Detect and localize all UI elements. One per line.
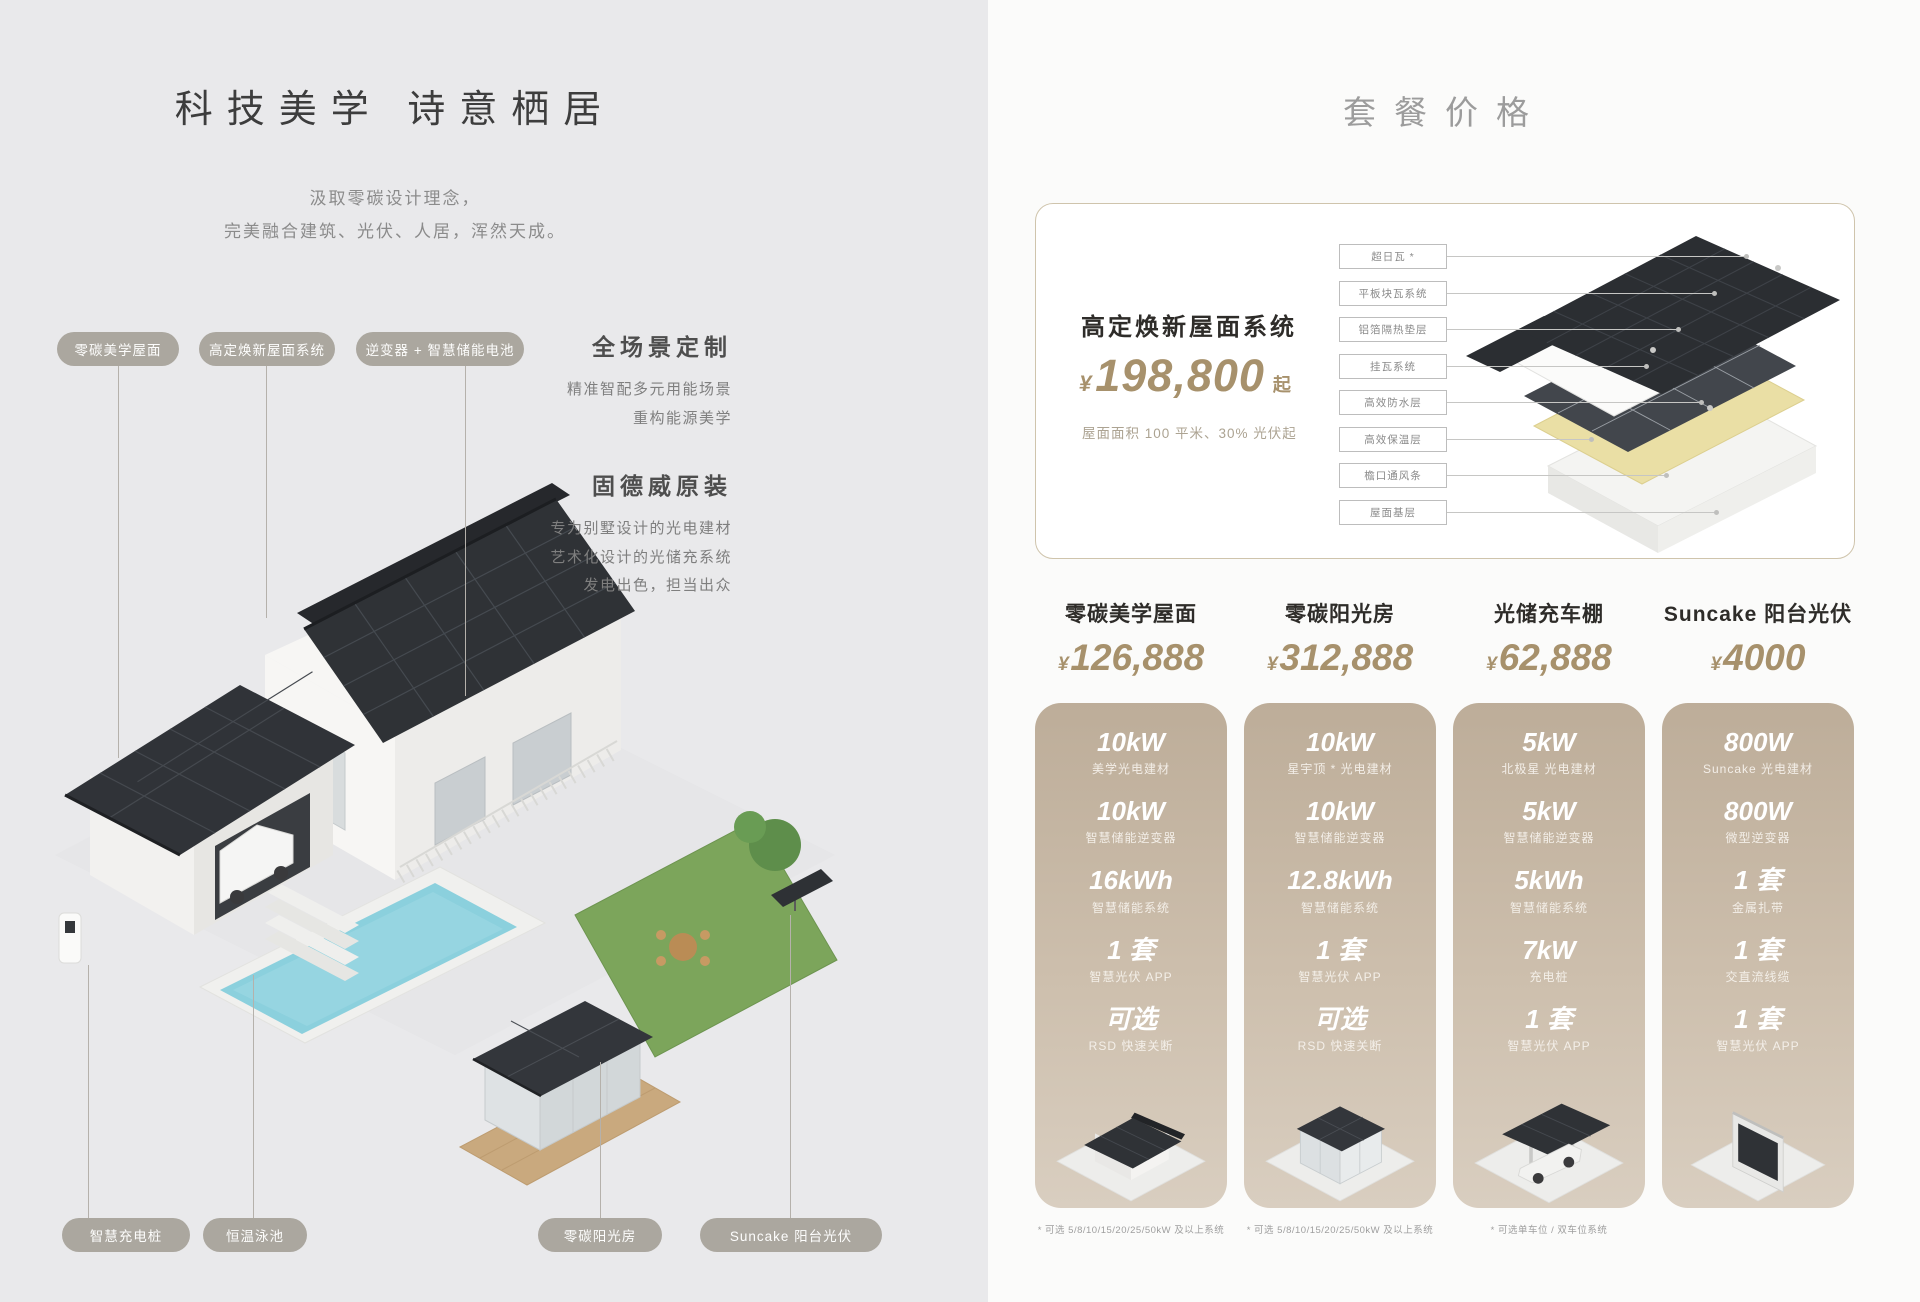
- layer-label: 屋面基层: [1339, 500, 1447, 525]
- roof-system-name: 高定焕新屋面系统: [1081, 307, 1297, 342]
- label-zero-carbon-roof: 零碳美学屋面: [57, 332, 179, 366]
- subtitle-line-2: 完美融合建筑、光伏、人居，浑然天成。: [0, 215, 790, 248]
- spec-label: 交直流线缆: [1725, 968, 1790, 985]
- price-suffix: 起: [1273, 371, 1291, 397]
- spec-value: 1 套: [1298, 935, 1381, 966]
- subtitle-line-1: 汲取零碳设计理念，: [0, 182, 790, 215]
- package-column-carport: 光储充车棚 ¥ 62,888 5kW北极星 光电建材 5kW智慧储能逆变器 5k…: [1453, 598, 1645, 1234]
- leader-line: [790, 915, 791, 1218]
- currency-symbol: ¥: [1486, 654, 1497, 676]
- spec-value: 800W: [1703, 727, 1813, 758]
- spec-label: 智慧光伏 APP: [1089, 968, 1172, 985]
- spec-label: 智慧储能逆变器: [1085, 829, 1176, 846]
- leader-line: [600, 1062, 601, 1218]
- currency-symbol: ¥: [1711, 654, 1722, 676]
- spec-label: 美学光电建材: [1092, 760, 1170, 777]
- spec-label: RSD 快速关断: [1298, 1037, 1383, 1054]
- spec-value: 1 套: [1732, 865, 1784, 896]
- spec-value: 1 套: [1089, 935, 1172, 966]
- feature-heading-goodwe: 固德威原装: [470, 467, 732, 501]
- package-name: Suncake 阳台光伏: [1664, 598, 1852, 628]
- package-price: ¥ 62,888: [1486, 637, 1612, 679]
- spec-label: 智慧光伏 APP: [1507, 1037, 1590, 1054]
- spec-value: 10kW: [1085, 796, 1176, 827]
- roof-layer-row: 铝箔隔热垫层: [1339, 317, 1679, 342]
- package-column-suncake: Suncake 阳台光伏 ¥ 4000 800WSuncake 光电建材 800…: [1662, 598, 1854, 1234]
- spec-label: 金属扎带: [1732, 899, 1784, 916]
- roof-house-illustration: [1039, 1073, 1223, 1208]
- spec-value: 1 套: [1725, 935, 1790, 966]
- feature-heading-custom: 全场景定制: [470, 328, 732, 362]
- roof-layer-row: 平板块瓦系统: [1339, 281, 1715, 306]
- spec-value: 12.8kWh: [1287, 865, 1393, 896]
- spec-label: 微型逆变器: [1724, 829, 1792, 846]
- price-amount: 312,888: [1279, 637, 1413, 679]
- currency-symbol: ¥: [1058, 654, 1069, 676]
- label-heated-pool: 恒温泳池: [203, 1218, 307, 1252]
- layer-label: 高效防水层: [1339, 390, 1447, 415]
- layer-label: 平板块瓦系统: [1339, 281, 1447, 306]
- spec-label: 智慧储能系统: [1089, 899, 1173, 916]
- package-price: ¥ 126,888: [1058, 637, 1204, 679]
- package-footnote: * 可选单车位 / 双车位系统: [1491, 1222, 1608, 1234]
- layer-label: 挂瓦系统: [1339, 354, 1447, 379]
- package-card: 5kW北极星 光电建材 5kW智慧储能逆变器 5kWh智慧储能系统 7kW充电桩…: [1453, 703, 1645, 1208]
- currency-symbol: ¥: [1079, 371, 1091, 397]
- feature-line: 精准智配多元用能场景: [470, 376, 732, 405]
- roof-layer-row: 屋面基层: [1339, 500, 1717, 525]
- package-footnote: * 可选 5/8/10/15/20/25/50kW 及以上系统: [1038, 1222, 1225, 1234]
- spec-value: 10kW: [1287, 727, 1392, 758]
- spec-label: RSD 快速关断: [1089, 1037, 1174, 1054]
- spec-value: 可选: [1298, 1004, 1383, 1035]
- brochure-page: 科技美学 诗意栖居 汲取零碳设计理念， 完美融合建筑、光伏、人居，浑然天成。: [0, 0, 1920, 1302]
- leader-line: [266, 366, 267, 618]
- charging-pile-illustration: [59, 913, 81, 963]
- layer-label: 铝箔隔热垫层: [1339, 317, 1447, 342]
- package-name: 零碳阳光房: [1285, 598, 1395, 628]
- roof-layer-row: 高效防水层: [1339, 390, 1702, 415]
- sunroom-illustration-small: [1248, 1073, 1432, 1208]
- layer-label: 高效保温层: [1339, 427, 1447, 452]
- roof-layer-row: 檐口通风条: [1339, 463, 1667, 488]
- spec-label: 智慧储能系统: [1287, 899, 1393, 916]
- roof-layer-row: 高效保温层: [1339, 427, 1592, 452]
- roof-layer-row: 挂瓦系统: [1339, 354, 1647, 379]
- spec-value: 5kWh: [1510, 865, 1588, 896]
- spec-label: 充电桩: [1522, 968, 1575, 985]
- spec-value: 5kW: [1501, 727, 1596, 758]
- spec-value: 1 套: [1716, 1004, 1799, 1035]
- balcony-pv-illustration: [1666, 1073, 1850, 1208]
- package-card: 800WSuncake 光电建材 800W微型逆变器 1 套金属扎带 1 套交直…: [1662, 703, 1854, 1208]
- package-name: 零碳美学屋面: [1065, 598, 1197, 628]
- package-column-sunroom: 零碳阳光房 ¥ 312,888 10kW星宇顶 * 光电建材 10kW智慧储能逆…: [1244, 598, 1436, 1234]
- spec-value: 5kW: [1503, 796, 1594, 827]
- package-price: ¥ 312,888: [1267, 637, 1413, 679]
- spec-label: 星宇顶 * 光电建材: [1287, 760, 1392, 777]
- package-name: 光储充车棚: [1494, 598, 1604, 628]
- spec-value: 7kW: [1522, 935, 1575, 966]
- spec-label: Suncake 光电建材: [1703, 760, 1813, 777]
- spec-label: 智慧储能逆变器: [1294, 829, 1385, 846]
- label-suncake-balcony: Suncake 阳台光伏: [700, 1218, 882, 1252]
- feature-line: 发电出色，担当出众: [470, 572, 732, 601]
- page-subtitle: 汲取零碳设计理念， 完美融合建筑、光伏、人居，浑然天成。: [0, 182, 790, 248]
- price-amount: 126,888: [1070, 637, 1204, 679]
- price-amount: 198,800: [1095, 350, 1265, 402]
- package-footnote: * 可选 5/8/10/15/20/25/50kW 及以上系统: [1247, 1222, 1434, 1234]
- package-price: ¥ 4000: [1711, 637, 1806, 679]
- spec-value: 10kW: [1092, 727, 1170, 758]
- label-smart-charger: 智慧充电桩: [62, 1218, 190, 1252]
- spec-value: 1 套: [1507, 1004, 1590, 1035]
- carport-illustration: [1457, 1073, 1641, 1208]
- spec-value: 可选: [1089, 1004, 1174, 1035]
- leader-line: [465, 366, 466, 696]
- house-illustration: [15, 375, 875, 1195]
- spec-value: 10kW: [1294, 796, 1385, 827]
- feature-text-block: 全场景定制 精准智配多元用能场景 重构能源美学 固德威原装 专为别墅设计的光电建…: [470, 328, 732, 601]
- roof-layer-row: 超日瓦 *: [1339, 244, 1747, 269]
- page-title: 科技美学 诗意栖居: [0, 78, 790, 133]
- layer-label: 檐口通风条: [1339, 463, 1447, 488]
- leader-line: [118, 366, 119, 758]
- spec-label: 智慧光伏 APP: [1298, 968, 1381, 985]
- spec-label: 智慧储能系统: [1510, 899, 1588, 916]
- package-card: 10kW星宇顶 * 光电建材 10kW智慧储能逆变器 12.8kWh智慧储能系统…: [1244, 703, 1436, 1208]
- package-card: 10kW美学光电建材 10kW智慧储能逆变器 16kWh智慧储能系统 1 套智慧…: [1035, 703, 1227, 1208]
- spec-label: 智慧光伏 APP: [1716, 1037, 1799, 1054]
- roof-system-card: 高定焕新屋面系统 ¥ 198,800 起 屋面面积 100 平米、30% 光伏起…: [1035, 203, 1855, 559]
- feature-line: 艺术化设计的光储充系统: [470, 544, 732, 573]
- roof-system-note: 屋面面积 100 平米、30% 光伏起: [1082, 422, 1297, 442]
- label-sunroom: 零碳阳光房: [538, 1218, 662, 1252]
- layer-label: 超日瓦 *: [1339, 244, 1447, 269]
- label-custom-roof-system: 高定焕新屋面系统: [199, 332, 335, 366]
- feature-line: 重构能源美学: [470, 405, 732, 434]
- leader-line: [253, 975, 254, 1218]
- spec-value: 16kWh: [1089, 865, 1173, 896]
- spec-label: 智慧储能逆变器: [1503, 829, 1594, 846]
- pricing-title: 套餐价格: [1035, 86, 1855, 134]
- price-amount: 4000: [1723, 637, 1805, 679]
- spec-label: 北极星 光电建材: [1501, 760, 1596, 777]
- feature-line: 专为别墅设计的光电建材: [470, 515, 732, 544]
- package-column-roof: 零碳美学屋面 ¥ 126,888 10kW美学光电建材 10kW智慧储能逆变器 …: [1035, 598, 1227, 1234]
- spec-value: 800W: [1724, 796, 1792, 827]
- currency-symbol: ¥: [1267, 654, 1278, 676]
- leader-line: [88, 965, 89, 1218]
- roof-system-price: ¥ 198,800 起: [1079, 350, 1291, 402]
- price-amount: 62,888: [1499, 637, 1612, 679]
